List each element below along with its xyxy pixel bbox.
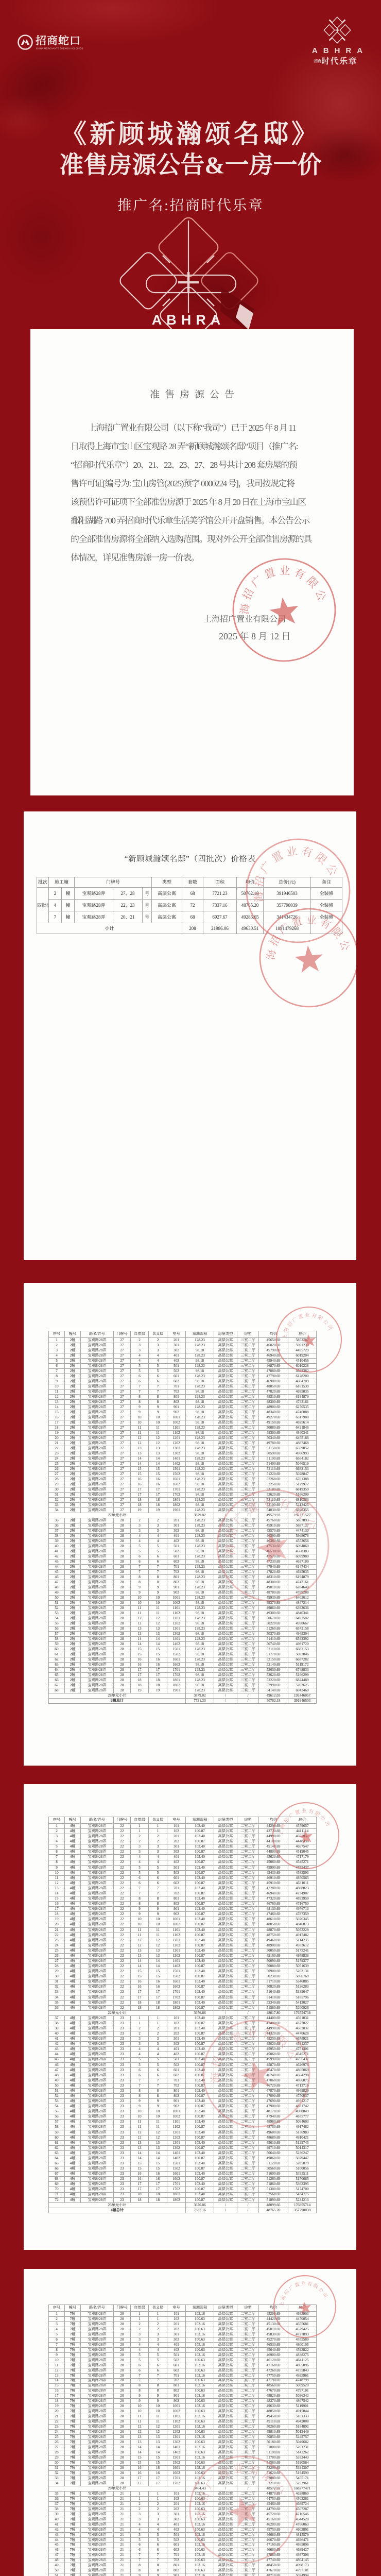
svg-text:上海招广置业有限公司: 上海招广置业有限公司 <box>273 1802 333 1837</box>
svg-text:ABHRA: ABHRA <box>152 312 226 328</box>
svg-text:上海招广置业有限公司: 上海招广置业有限公司 <box>237 830 345 909</box>
svg-text:上海招广置业有限公司: 上海招广置业有限公司 <box>276 1307 336 1341</box>
